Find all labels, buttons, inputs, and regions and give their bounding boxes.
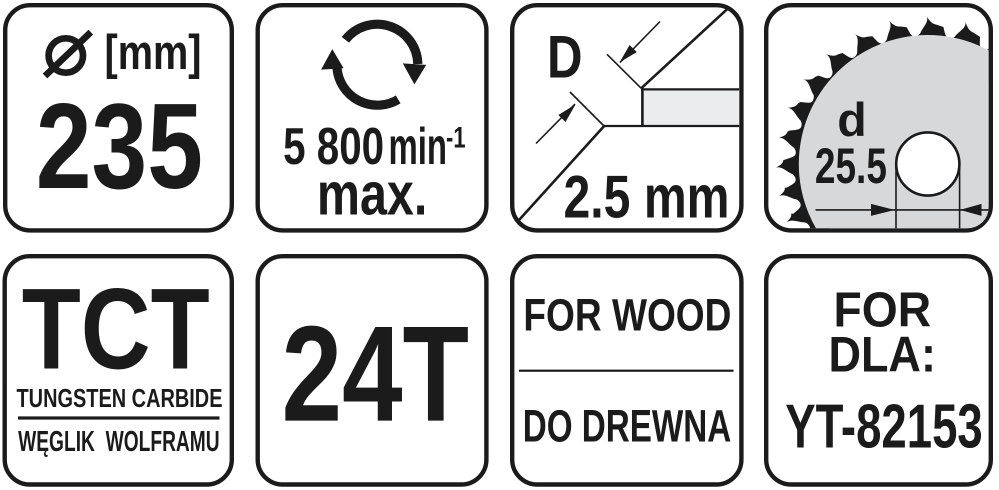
svg-text:TCT: TCT: [22, 266, 210, 394]
svg-text:WĘGLIK WOLFRAMU: WĘGLIK WOLFRAMU: [18, 426, 220, 458]
svg-text:2.5 mm: 2.5 mm: [564, 164, 730, 231]
svg-text:25.5: 25.5: [815, 137, 887, 194]
svg-text:DLA:: DLA:: [828, 327, 936, 383]
svg-text:24T: 24T: [282, 298, 469, 450]
svg-text:max.: max.: [317, 159, 428, 227]
svg-text:D: D: [547, 22, 583, 90]
svg-text:FOR WOOD: FOR WOOD: [523, 290, 731, 341]
svg-text:DO DREWNA: DO DREWNA: [523, 401, 732, 452]
svg-text:-1: -1: [446, 122, 466, 155]
svg-text:TUNGSTEN CARBIDE: TUNGSTEN CARBIDE: [17, 385, 223, 413]
svg-text:YT-82153: YT-82153: [785, 392, 983, 461]
svg-text:[mm]: [mm]: [105, 25, 202, 80]
svg-text:235: 235: [36, 78, 203, 214]
